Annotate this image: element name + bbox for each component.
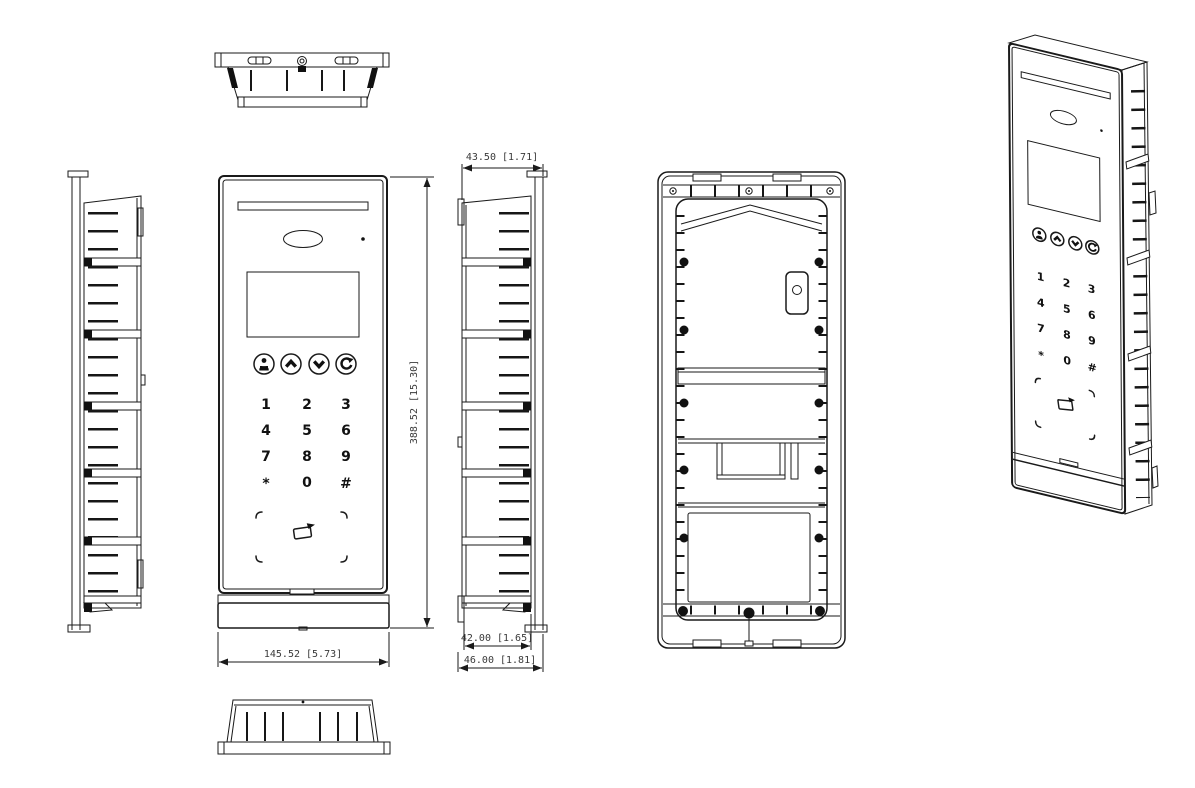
keypad-key-0[interactable]: 0 <box>302 475 312 491</box>
iso-keypad-key-6[interactable]: 6 <box>1088 308 1096 323</box>
iso-keypad-key-4[interactable]: 4 <box>1037 296 1045 311</box>
keypad-key-2[interactable]: 2 <box>302 397 312 413</box>
side-depth-overall-label: 46.00 [1.81] <box>464 655 536 666</box>
iso-keypad-key-7[interactable]: 7 <box>1037 321 1045 336</box>
keypad-key-3[interactable]: 3 <box>341 397 351 413</box>
intercom-dimension-drawing: 1 2 3 4 5 6 7 8 9 * 0 # <box>0 0 1195 788</box>
canvas-background <box>0 0 1195 788</box>
side-depth-body-label: 42.00 [1.65] <box>461 633 533 644</box>
front-height-label: 388.52 [15.30] <box>409 360 420 444</box>
iso-keypad-key-5[interactable]: 5 <box>1063 302 1071 317</box>
iso-keypad-key-8[interactable]: 8 <box>1063 328 1071 343</box>
iso-keypad-key-9[interactable]: 9 <box>1088 334 1096 349</box>
iso-keypad-key-3[interactable]: 3 <box>1088 282 1096 297</box>
keypad-key-hash[interactable]: # <box>340 476 352 492</box>
keypad-key-5[interactable]: 5 <box>302 423 312 439</box>
keypad-key-8[interactable]: 8 <box>302 449 312 465</box>
keypad-key-7[interactable]: 7 <box>261 449 271 465</box>
keypad-key-4[interactable]: 4 <box>261 423 271 439</box>
side-depth-top-label: 43.50 [1.71] <box>466 152 538 163</box>
keypad-key-1[interactable]: 1 <box>261 397 271 413</box>
front-width-label: 145.52 [5.73] <box>264 649 342 660</box>
iso-keypad-key-hash[interactable]: # <box>1088 360 1097 375</box>
drawing-canvas: 1 2 3 4 5 6 7 8 9 * 0 # <box>0 0 1195 788</box>
iso-keypad-key-0[interactable]: 0 <box>1063 354 1071 369</box>
bottom-latch-notch <box>290 589 314 594</box>
mic-hole <box>361 237 365 241</box>
iso-keypad-key-1[interactable]: 1 <box>1037 270 1045 285</box>
keypad-key-9[interactable]: 9 <box>341 449 351 465</box>
keypad-key-6[interactable]: 6 <box>341 423 351 439</box>
keypad-key-star[interactable]: * <box>262 476 270 492</box>
iso-keypad-key-2[interactable]: 2 <box>1063 276 1071 291</box>
iso-keypad-key-star[interactable]: * <box>1038 349 1044 363</box>
